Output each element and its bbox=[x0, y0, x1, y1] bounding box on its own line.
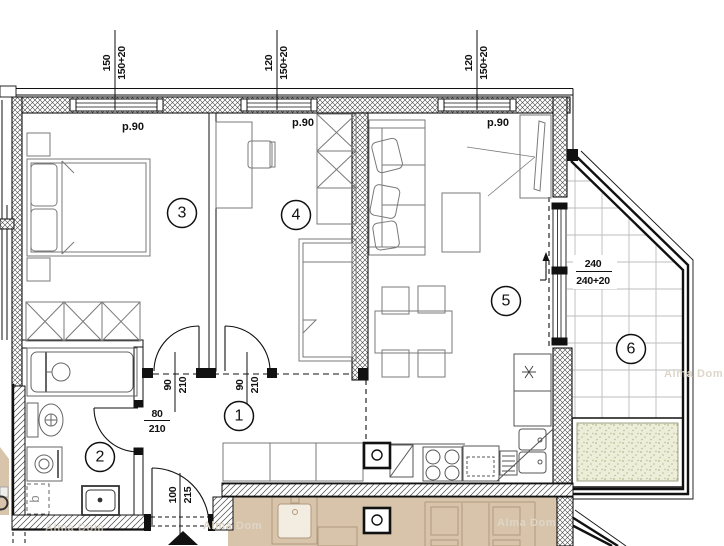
fridge-snowflake bbox=[522, 366, 536, 378]
room-badge-1: 1 bbox=[225, 402, 254, 431]
balcony bbox=[0, 89, 693, 546]
shaft-box bbox=[364, 443, 390, 468]
dim-entry-b: 215 bbox=[182, 486, 194, 503]
exterior-wall-right-upper bbox=[553, 97, 567, 197]
dim-win1-a: 150 bbox=[101, 54, 113, 71]
dining-table bbox=[375, 311, 452, 353]
room-badge-2: 2 bbox=[86, 443, 115, 472]
pillow bbox=[31, 209, 57, 251]
dim-door4-b: 210 bbox=[249, 376, 261, 393]
dim-win2-b: 150+20 bbox=[278, 46, 290, 80]
floor-plan-drawing: 150 150+20 120 150+20 120 150+20 90 210 … bbox=[0, 0, 724, 546]
dim-win3-a: 120 bbox=[463, 54, 475, 71]
dim-entry-a: 100 bbox=[167, 486, 179, 503]
wall-end bbox=[358, 368, 368, 380]
partition-room3-room4 bbox=[209, 113, 216, 371]
door-jamb bbox=[267, 368, 277, 378]
party-wall-bottom bbox=[222, 483, 573, 497]
exterior-wall-right-lower bbox=[553, 348, 572, 483]
dining-chair bbox=[382, 287, 409, 314]
partition-bath-hall-lower bbox=[134, 448, 143, 515]
door-jamb bbox=[134, 400, 143, 407]
dim-win3-b: 150+20 bbox=[478, 46, 490, 80]
parapet-tag-room3: p.90 bbox=[122, 121, 144, 133]
burner bbox=[445, 466, 459, 480]
planter-greenery bbox=[577, 423, 678, 481]
dim-win1-b: 150+20 bbox=[116, 46, 128, 80]
door-room3 bbox=[154, 326, 199, 371]
window-room3 bbox=[70, 99, 163, 111]
room4-bed bbox=[299, 239, 356, 361]
room-badge-4: 4 bbox=[282, 201, 311, 230]
exterior-wall-left bbox=[12, 97, 22, 386]
neighbor-balcony-divider bbox=[0, 219, 14, 229]
room-badge-5: 5 bbox=[492, 287, 521, 316]
room3-bed bbox=[27, 159, 150, 256]
partition-bath-hall-upper bbox=[134, 347, 143, 407]
entrance-marker-arrow bbox=[168, 531, 198, 545]
boiler-label: b bbox=[27, 495, 42, 502]
toilet bbox=[27, 403, 63, 437]
window-room4 bbox=[241, 99, 317, 111]
watermark-text: Alma Dom bbox=[203, 520, 262, 532]
sofa-pillow bbox=[372, 220, 400, 250]
exterior-wall-below bbox=[557, 497, 573, 546]
dim-balcony-b: 240+20 bbox=[576, 275, 610, 287]
svg-text:3: 3 bbox=[178, 205, 187, 222]
dining-chair bbox=[418, 286, 445, 313]
bathroom-fixtures bbox=[27, 348, 137, 515]
shaft-box bbox=[364, 508, 390, 533]
walls bbox=[0, 86, 573, 546]
kitchen bbox=[390, 354, 553, 481]
burner bbox=[445, 450, 459, 464]
svg-text:4: 4 bbox=[292, 207, 301, 224]
oven-door bbox=[467, 457, 494, 476]
stove bbox=[423, 447, 462, 481]
windows bbox=[70, 99, 567, 345]
room4-desk bbox=[216, 122, 275, 208]
dining-set bbox=[375, 286, 452, 377]
dining-chair bbox=[418, 350, 445, 377]
balcony-door-slide-indicator bbox=[540, 197, 550, 350]
sofa-pillow bbox=[369, 184, 400, 219]
svg-text:1: 1 bbox=[235, 408, 244, 425]
burner bbox=[426, 450, 440, 464]
door-jamb bbox=[144, 514, 151, 531]
dim-door4-a: 90 bbox=[234, 379, 246, 391]
parapet-tag-room5: p.90 bbox=[487, 117, 509, 129]
svg-text:6: 6 bbox=[627, 341, 636, 358]
hall-closet bbox=[223, 443, 363, 481]
floor-plan-page: 150 150+20 120 150+20 120 150+20 90 210 … bbox=[0, 0, 724, 546]
furniture bbox=[26, 114, 551, 481]
dim-door3-a: 90 bbox=[162, 379, 174, 391]
neighbor-fixture bbox=[0, 487, 8, 497]
coffee-table bbox=[442, 193, 480, 252]
parapet-tag-room4: p.90 bbox=[292, 117, 314, 129]
neighbor-window-stub bbox=[0, 86, 16, 97]
sink-drain bbox=[538, 460, 542, 464]
kitchen-cabinet bbox=[514, 391, 551, 426]
dim-bath-a: 80 bbox=[151, 408, 163, 420]
svg-text:5: 5 bbox=[502, 293, 511, 310]
burner bbox=[426, 466, 440, 480]
nightstand bbox=[27, 258, 50, 281]
dim-win2-a: 120 bbox=[263, 54, 275, 71]
room3-wardrobe bbox=[26, 302, 140, 341]
watermark-text: Alma Dom bbox=[664, 368, 723, 380]
watermark-text: Alma Dom bbox=[497, 517, 556, 529]
shower-tray bbox=[82, 486, 119, 515]
dining-chair bbox=[382, 350, 409, 377]
balcony-door bbox=[552, 203, 567, 345]
nightstand bbox=[27, 133, 50, 156]
sofa-pillow bbox=[371, 137, 404, 173]
dim-balcony-a: 240 bbox=[585, 258, 602, 270]
dim-door3-b: 210 bbox=[177, 376, 189, 393]
pillow bbox=[31, 164, 57, 206]
door-jamb bbox=[142, 368, 153, 378]
watermark-text: Alma Dom bbox=[45, 522, 104, 534]
room-badge-6: 6 bbox=[617, 335, 646, 364]
washing-machine bbox=[27, 447, 62, 481]
room5-sofa bbox=[369, 120, 425, 255]
room-badge-3: 3 bbox=[168, 199, 197, 228]
room4-wardrobe bbox=[317, 114, 356, 224]
drainboard bbox=[500, 451, 517, 475]
svg-text:2: 2 bbox=[96, 449, 105, 466]
dim-bath-b: 210 bbox=[149, 423, 166, 435]
bathtub bbox=[27, 348, 137, 396]
